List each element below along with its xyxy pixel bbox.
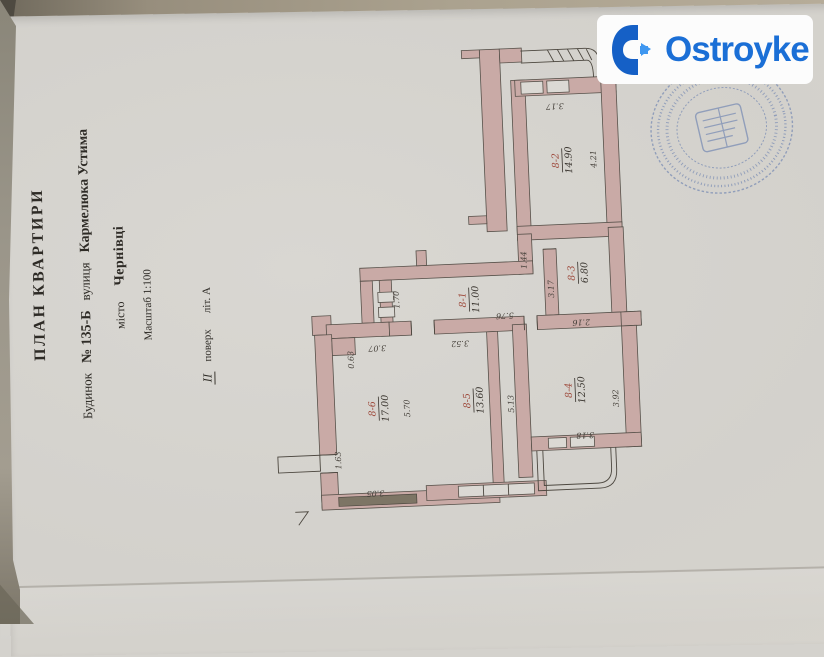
dim-label: 0.63 bbox=[346, 351, 356, 369]
wall-tick bbox=[461, 50, 479, 59]
svg-text:8-3: 8-3 bbox=[566, 265, 578, 281]
liter-label: літ. А bbox=[201, 287, 213, 313]
street-label: вулиця bbox=[77, 262, 93, 300]
dim-label: 5.13 bbox=[506, 395, 516, 413]
city-label: місто bbox=[113, 301, 128, 329]
svg-text:13.60: 13.60 bbox=[474, 386, 486, 414]
city-name: Чернівці bbox=[112, 226, 128, 286]
floor-plan: 8-1 11.00 8-2 14.90 8-3 6.80 8-4 12.50 8… bbox=[247, 28, 683, 560]
svg-text:6.80: 6.80 bbox=[579, 262, 591, 284]
corner-mark bbox=[295, 512, 309, 526]
wall bbox=[389, 321, 412, 336]
building-number: № 135-Б bbox=[79, 310, 95, 363]
svg-text:14.90: 14.90 bbox=[563, 146, 575, 174]
svg-text:8-5: 8-5 bbox=[462, 393, 474, 409]
dim-label: 3.07 bbox=[367, 343, 386, 353]
door-jamb-line bbox=[537, 316, 538, 330]
dim-label: 3.17 bbox=[546, 279, 556, 298]
wall bbox=[621, 311, 642, 326]
floor-line: ІІповерхліт. А bbox=[197, 277, 219, 395]
room-label-8-3: 8-3 6.80 bbox=[566, 261, 591, 284]
door-jamb-line bbox=[434, 320, 435, 334]
window bbox=[521, 81, 544, 94]
svg-text:8-2: 8-2 bbox=[550, 153, 562, 169]
dim-label: 4.21 bbox=[589, 150, 599, 169]
scale-line: Масштаб 1:100 bbox=[137, 249, 159, 361]
door-jamb-line bbox=[543, 249, 556, 250]
balcony-bottom-inner bbox=[543, 448, 612, 486]
street-name: Кармелюка Устима bbox=[76, 129, 93, 253]
document-content: ПЛАН КВАРТИРИ Будинок№ 135-БвулицяКармел… bbox=[0, 0, 824, 632]
dim-label: 3.92 bbox=[611, 389, 621, 407]
ostroyke-logo-icon bbox=[609, 23, 655, 77]
wall-tick bbox=[416, 250, 427, 265]
document-title: ПЛАН КВАРТИРИ bbox=[28, 197, 51, 361]
dim-label: 5.76 bbox=[496, 311, 514, 321]
wall-tick bbox=[469, 216, 487, 225]
wall bbox=[621, 325, 641, 447]
room-label-8-5: 8-5 13.60 bbox=[461, 386, 486, 414]
dim-label: 1.63 bbox=[334, 451, 344, 469]
dim-label: 1.44 bbox=[519, 251, 529, 269]
room-label-8-2: 8-2 14.90 bbox=[550, 146, 575, 174]
dim-label: 3.05 bbox=[366, 488, 384, 498]
wall bbox=[479, 49, 507, 232]
svg-text:12.50: 12.50 bbox=[576, 376, 588, 404]
wall bbox=[326, 322, 390, 339]
svg-text:8-1: 8-1 bbox=[457, 292, 469, 308]
stamp-emblem bbox=[695, 103, 749, 152]
dim-label: 2.16 bbox=[572, 317, 591, 327]
room-label-8-6: 8-6 17.00 bbox=[367, 394, 392, 422]
stamp-text-ring bbox=[657, 67, 787, 189]
city-line: містоЧернівці bbox=[108, 209, 131, 345]
stamp-emblem-lines bbox=[701, 104, 743, 151]
door-jamb-line bbox=[411, 321, 412, 335]
stair-stub-wall bbox=[278, 455, 321, 473]
wall bbox=[517, 222, 623, 241]
dim-label: 5.70 bbox=[402, 399, 412, 417]
svg-text:11.00: 11.00 bbox=[470, 285, 482, 313]
floor-plan-drawing: 8-1 11.00 8-2 14.90 8-3 6.80 8-4 12.50 8… bbox=[247, 28, 683, 560]
room-label-8-4: 8-4 12.50 bbox=[563, 376, 588, 404]
ostroyke-logo-text: Ostroyke bbox=[665, 30, 809, 70]
window bbox=[548, 437, 566, 448]
wall bbox=[360, 261, 533, 282]
wall bbox=[499, 48, 522, 63]
dim-label: 3.17 bbox=[545, 101, 564, 111]
wall bbox=[379, 280, 393, 327]
door-jamb-line bbox=[524, 316, 525, 330]
watermark-logo: Ostroyke bbox=[597, 15, 813, 84]
wall bbox=[511, 80, 532, 234]
wall bbox=[360, 281, 374, 323]
dim-label: 3.52 bbox=[451, 339, 469, 349]
dim-label: 3.18 bbox=[576, 430, 594, 440]
svg-text:8-4: 8-4 bbox=[563, 382, 575, 398]
floor-word: поверх bbox=[202, 329, 215, 362]
window bbox=[547, 80, 570, 93]
dim-label: 1.70 bbox=[392, 291, 402, 309]
wall bbox=[487, 331, 505, 488]
room-label-8-1: 8-1 11.00 bbox=[457, 285, 482, 313]
building-label: Будинок bbox=[79, 373, 95, 419]
floor-number: ІІ bbox=[201, 371, 215, 384]
address-line: Будинок№ 135-БвулицяКармелюка Устима bbox=[72, 110, 98, 438]
balcony-hatch bbox=[547, 48, 591, 62]
wall bbox=[608, 227, 627, 313]
svg-text:17.00: 17.00 bbox=[380, 394, 392, 422]
svg-text:8-6: 8-6 bbox=[367, 401, 379, 417]
